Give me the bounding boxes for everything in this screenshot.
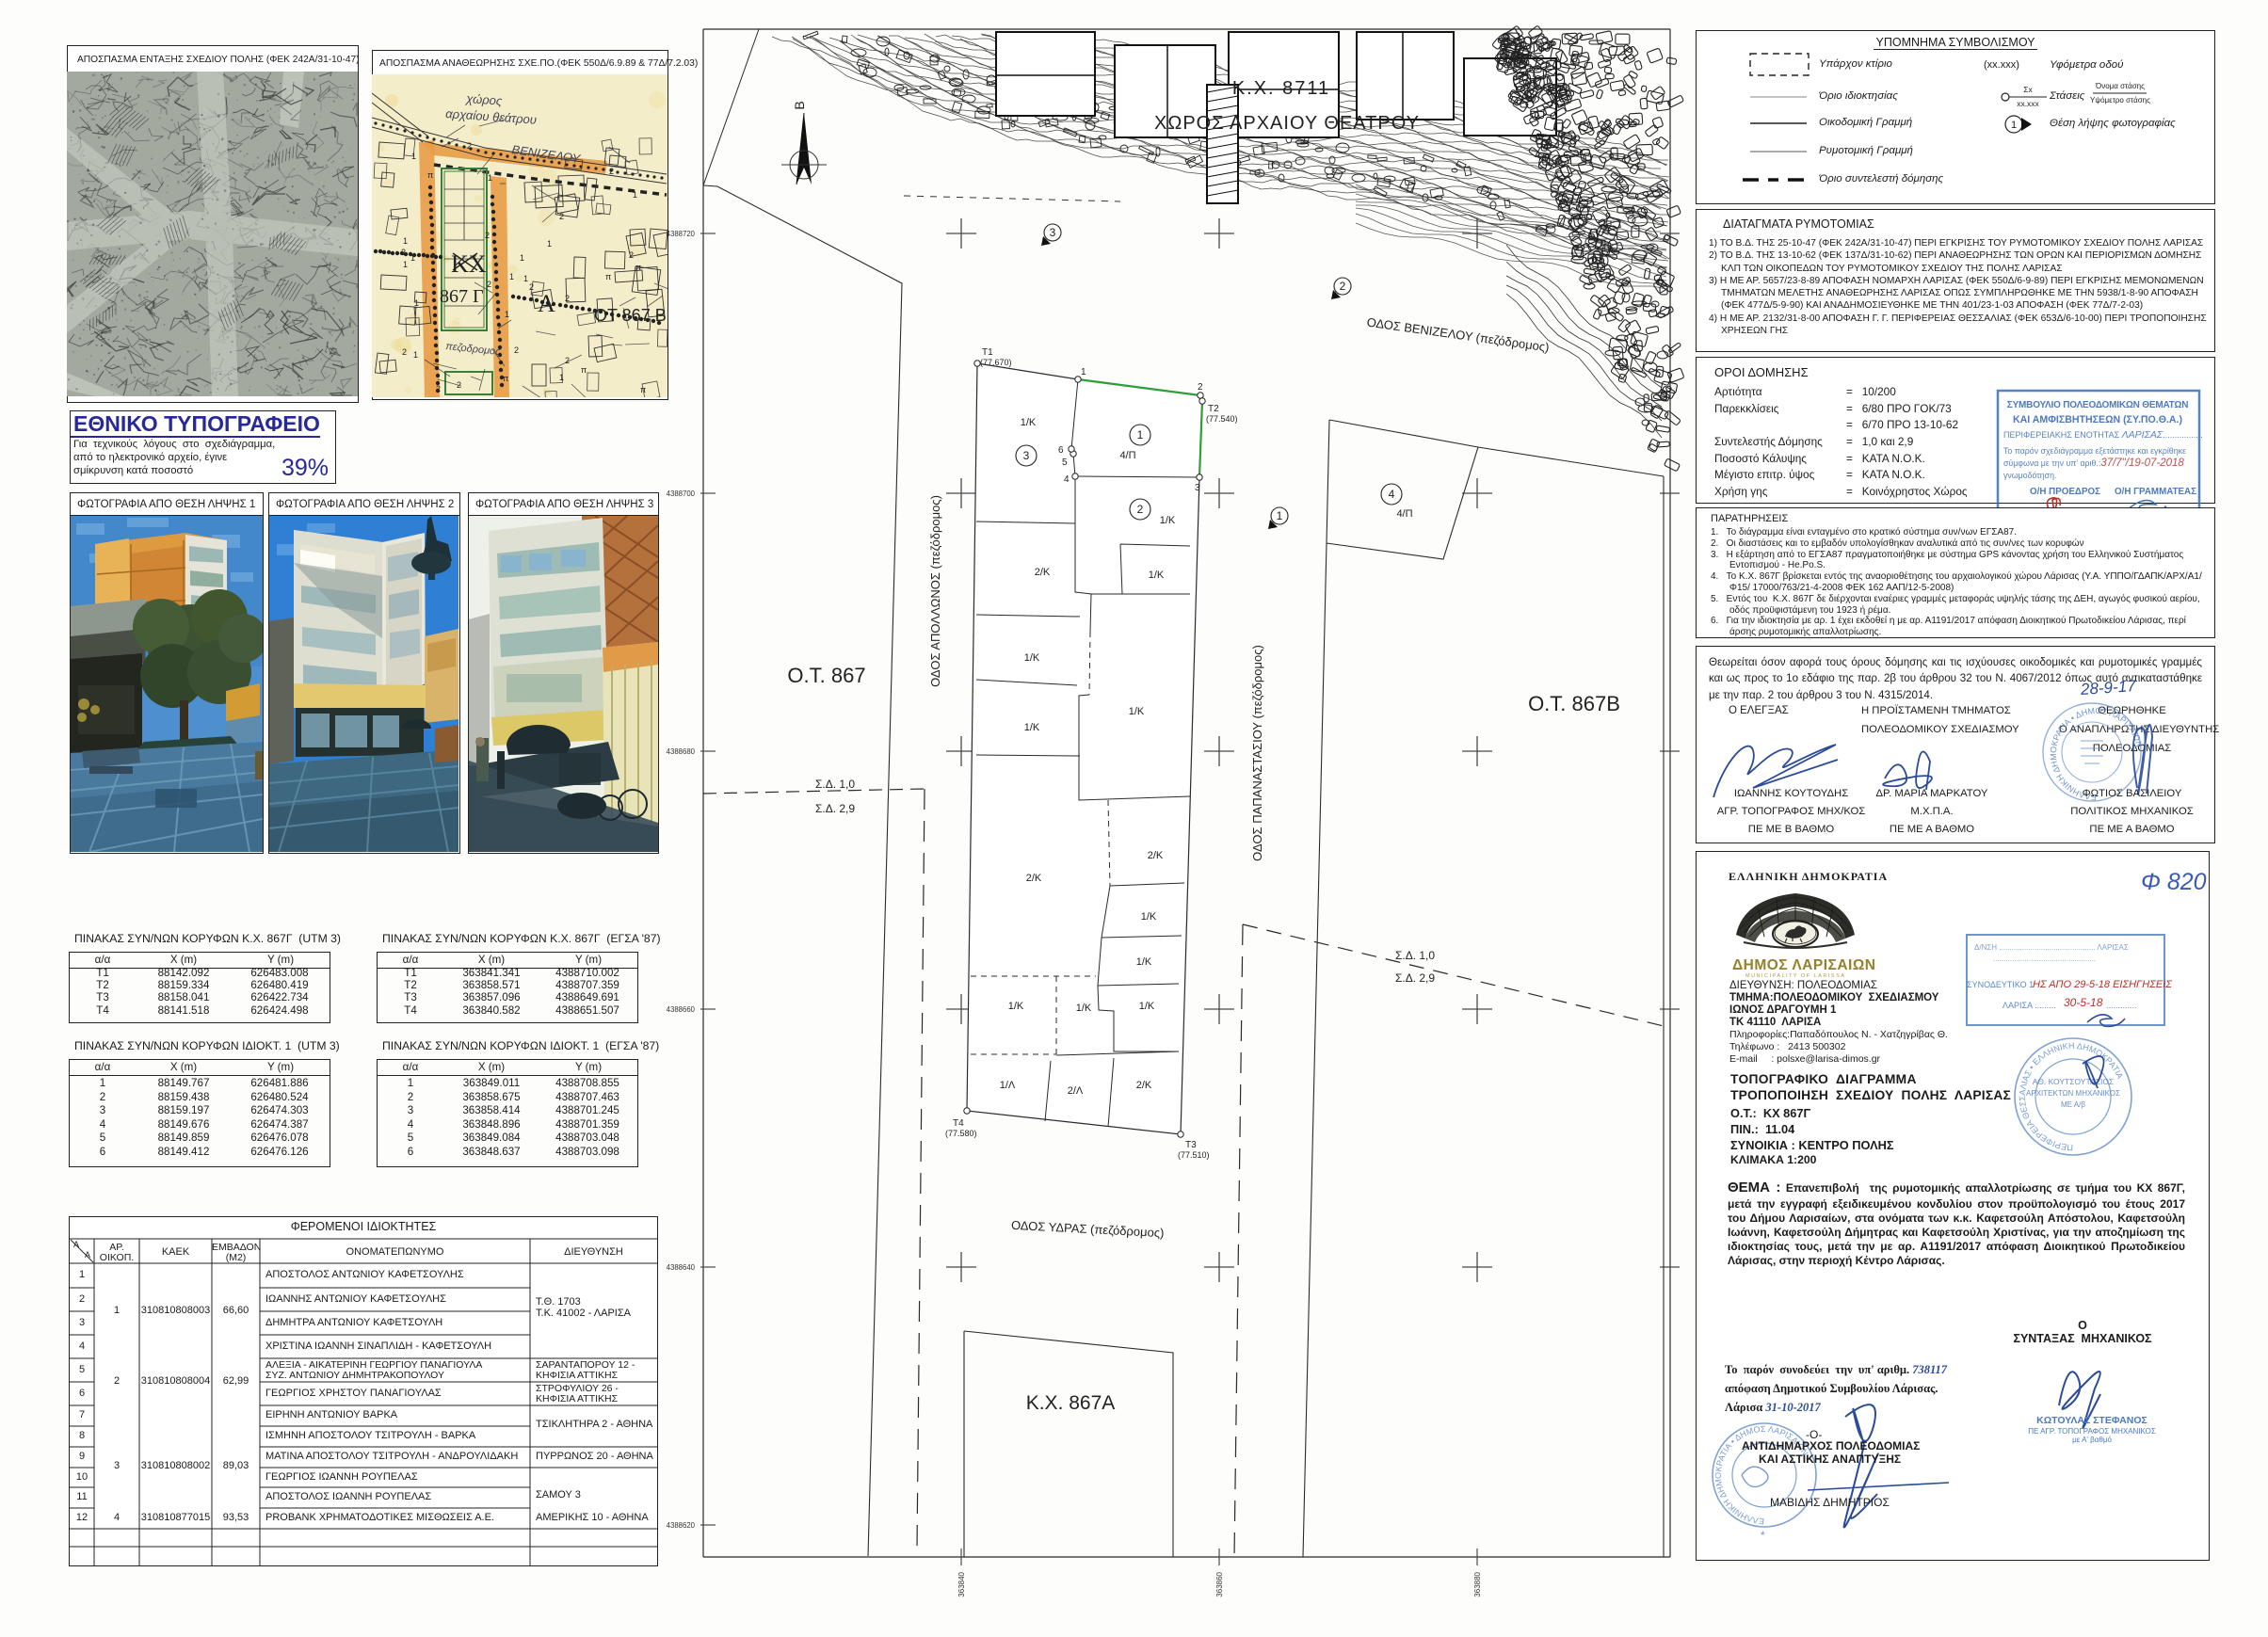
svg-text:Σ.Δ. 2,9: Σ.Δ. 2,9 [1395, 971, 1435, 985]
svg-text:4/Π: 4/Π [1396, 508, 1412, 520]
svg-text:6: 6 [1058, 445, 1064, 456]
svg-text:ΗΣ ΑΠΟ 29-5-18 ΕΙΣΗΓΗΣΕΙΣ: ΗΣ ΑΠΟ 29-5-18 ΕΙΣΗΓΗΣΕΙΣ [2033, 979, 2172, 990]
svg-text:ΜΕ Α/β: ΜΕ Α/β [2061, 1100, 2085, 1109]
svg-text:Δ/ΝΣΗ ........................: Δ/ΝΣΗ ..................................… [1974, 943, 2129, 952]
svg-text:1: 1 [1137, 428, 1144, 441]
svg-text:Σx: Σx [2023, 85, 2033, 94]
svg-text:T1: T1 [982, 347, 993, 358]
svg-text:4388640: 4388640 [667, 1263, 696, 1272]
svg-text:ΧΩΡΟΣ ΑΡΧΑΙΟΥ ΘΕΑΤΡΟΥ: ΧΩΡΟΣ ΑΡΧΑΙΟΥ ΘΕΑΤΡΟΥ [1154, 113, 1420, 134]
svg-text:3: 3 [1050, 226, 1056, 239]
svg-text:xx.xxx: xx.xxx [2017, 99, 2039, 108]
svg-text:..............................: ........................................… [1993, 955, 2096, 963]
svg-text:1/Λ: 1/Λ [1000, 1080, 1016, 1091]
svg-text:.............: ............. [2106, 1001, 2137, 1010]
svg-text:Κ.Χ. 8711: Κ.Χ. 8711 [1232, 78, 1330, 99]
svg-text:1/Κ: 1/Κ [1024, 652, 1040, 664]
svg-text:1/Κ: 1/Κ [1008, 1001, 1024, 1012]
svg-text:Υψόμετρο στάσης: Υψόμετρο στάσης [2090, 96, 2150, 104]
svg-text:1: 1 [1081, 367, 1086, 377]
svg-text:*: * [1761, 1529, 1765, 1542]
svg-text:ΛΑΡΙΣΑ .........: ΛΑΡΙΣΑ ......... [2003, 1001, 2056, 1010]
svg-text:2/Κ: 2/Κ [1035, 567, 1051, 578]
svg-text:2: 2 [1198, 382, 1203, 393]
svg-text:ΟΔΟΣ ΑΠΟΛΛΩΝΟΣ (πεζόδρομος): ΟΔΟΣ ΑΠΟΛΛΩΝΟΣ (πεζόδρομος) [928, 495, 942, 687]
svg-text:4/Π: 4/Π [1119, 450, 1135, 461]
svg-text:Σ.Δ. 1,0: Σ.Δ. 1,0 [1395, 949, 1435, 962]
svg-text:ΣΥΝΟΔΕΥΤΙΚΟ 1: ΣΥΝΟΔΕΥΤΙΚΟ 1 [1967, 980, 2034, 989]
svg-text:4388680: 4388680 [667, 747, 696, 756]
svg-text:1/Κ: 1/Κ [1160, 515, 1176, 526]
svg-text:Κ.Χ. 867Α: Κ.Χ. 867Α [1026, 1392, 1116, 1414]
svg-text:ΣΥΜΒΟΥΛΙΟ ΠΟΛΕΟΔΟΜΙΚΩΝ ΘΕΜΑΤΩΝ: ΣΥΜΒΟΥΛΙΟ ΠΟΛΕΟΔΟΜΙΚΩΝ ΘΕΜΑΤΩΝ [2007, 400, 2188, 410]
svg-text:Ο/Η ΓΡΑΜΜΑΤΕΑΣ: Ο/Η ΓΡΑΜΜΑΤΕΑΣ [2115, 487, 2196, 497]
svg-text:363860: 363860 [1215, 1571, 1224, 1597]
svg-text:Σ.Δ. 2,9: Σ.Δ. 2,9 [815, 802, 855, 815]
svg-text:5: 5 [1062, 457, 1068, 468]
svg-text:4388720: 4388720 [667, 230, 696, 238]
svg-text:30-5-18: 30-5-18 [2064, 996, 2103, 1009]
svg-text:3: 3 [1023, 449, 1030, 462]
svg-text:ΠΕΡΙΦΕΡΕΙΑΚΗΣ ΕΝΟΤΗΤΑΣ ΛΑΡΙΣΑΣ: ΠΕΡΙΦΕΡΕΙΑΚΗΣ ΕΝΟΤΗΤΑΣ ΛΑΡΙΣΑΣ..........… [2003, 429, 2203, 441]
svg-text:1/Κ: 1/Κ [1139, 1001, 1155, 1012]
svg-text:2/Κ: 2/Κ [1148, 850, 1164, 861]
svg-text:2: 2 [1340, 280, 1346, 293]
svg-text:1/Κ: 1/Κ [1021, 417, 1037, 428]
svg-text:T2: T2 [1208, 404, 1219, 414]
svg-text:1: 1 [2011, 120, 2017, 131]
svg-text:Το παρόν σχεδιάγραμμα εξετάστη: Το παρόν σχεδιάγραμμα εξετάστηκε και εγκ… [2003, 446, 2186, 456]
svg-text:ΟΔΟΣ ΒΕΝΙΖΕΛΟΥ (πεζόδρομος): ΟΔΟΣ ΒΕΝΙΖΕΛΟΥ (πεζόδρομος) [1366, 315, 1551, 355]
svg-text:1/Κ: 1/Κ [1136, 956, 1152, 968]
svg-text:T3: T3 [1185, 1140, 1197, 1150]
svg-text:1/Κ: 1/Κ [1076, 1003, 1092, 1014]
svg-text:(77.510): (77.510) [1178, 1150, 1210, 1160]
svg-text:Ο/Η ΠΡΟΕΔΡΟΣ: Ο/Η ΠΡΟΕΔΡΟΣ [2030, 487, 2100, 497]
svg-text:2/Λ: 2/Λ [1068, 1085, 1084, 1097]
svg-text:ΟΔΟΣ ΥΔΡΑΣ (πεζόδρομος): ΟΔΟΣ ΥΔΡΑΣ (πεζόδρομος) [1011, 1218, 1165, 1240]
svg-text:σύμφωνα με την υπ' αριθ.:37/7": σύμφωνα με την υπ' αριθ.:37/7"/19-07-201… [2003, 457, 2184, 469]
svg-text:1/Κ: 1/Κ [1129, 706, 1145, 717]
svg-text:ΟΔΟΣ ΠΑΠΑΝΑΣΤΑΣΙΟΥ (πεζόδρομος: ΟΔΟΣ ΠΑΠΑΝΑΣΤΑΣΙΟΥ (πεζόδρομος) [1250, 645, 1264, 861]
svg-text:4: 4 [1064, 474, 1070, 485]
svg-text:2/Κ: 2/Κ [1136, 1080, 1152, 1091]
svg-text:4388620: 4388620 [667, 1521, 696, 1530]
svg-text:(77.670): (77.670) [980, 358, 1012, 367]
svg-text:Σ.Δ. 1,0: Σ.Δ. 1,0 [815, 778, 855, 791]
svg-text:Όνομα στάσης: Όνομα στάσης [2095, 82, 2145, 90]
svg-text:4388700: 4388700 [667, 489, 696, 498]
svg-text:γνωμοδότηση.: γνωμοδότηση. [2003, 471, 2056, 480]
svg-text:1/Κ: 1/Κ [1024, 722, 1040, 733]
svg-text:1/Κ: 1/Κ [1149, 570, 1165, 581]
svg-text:4388660: 4388660 [667, 1005, 696, 1014]
svg-text:ΚΑΙ ΑΜΦΙΣΒΗΤΗΣΕΩΝ (ΣΥ.ΠΟ.Θ.Α.): ΚΑΙ ΑΜΦΙΣΒΗΤΗΣΕΩΝ (ΣΥ.ΠΟ.Θ.Α.) [2013, 414, 2182, 425]
svg-text:ΑΘ. ΚΟΥΤΣΟΥΤΑΣΙΟΣ: ΑΘ. ΚΟΥΤΣΟΥΤΑΣΙΟΣ [2033, 1077, 2114, 1086]
svg-text:T4: T4 [953, 1118, 964, 1129]
svg-text:(77.540): (77.540) [1206, 414, 1238, 424]
svg-text:ΑΡΧΙΤΕΚΤΩΝ ΜΗΧΑΝΙΚΟΣ: ΑΡΧΙΤΕΚΤΩΝ ΜΗΧΑΝΙΚΟΣ [2026, 1089, 2120, 1098]
svg-text:3: 3 [1195, 483, 1200, 493]
svg-text:(77.580): (77.580) [945, 1129, 977, 1138]
svg-text:Ο.Τ. 867: Ο.Τ. 867 [787, 664, 865, 687]
svg-text:363840: 363840 [957, 1571, 966, 1597]
svg-text:Β: Β [792, 101, 807, 109]
svg-text:1: 1 [1277, 509, 1283, 522]
svg-text:Ο.Τ. 867Β: Ο.Τ. 867Β [1528, 692, 1620, 715]
svg-text:2: 2 [1137, 503, 1144, 516]
svg-text:4: 4 [1389, 488, 1395, 501]
svg-text:2/Κ: 2/Κ [1026, 873, 1042, 884]
svg-text:1/Κ: 1/Κ [1141, 911, 1157, 923]
svg-text:363880: 363880 [1473, 1571, 1482, 1597]
